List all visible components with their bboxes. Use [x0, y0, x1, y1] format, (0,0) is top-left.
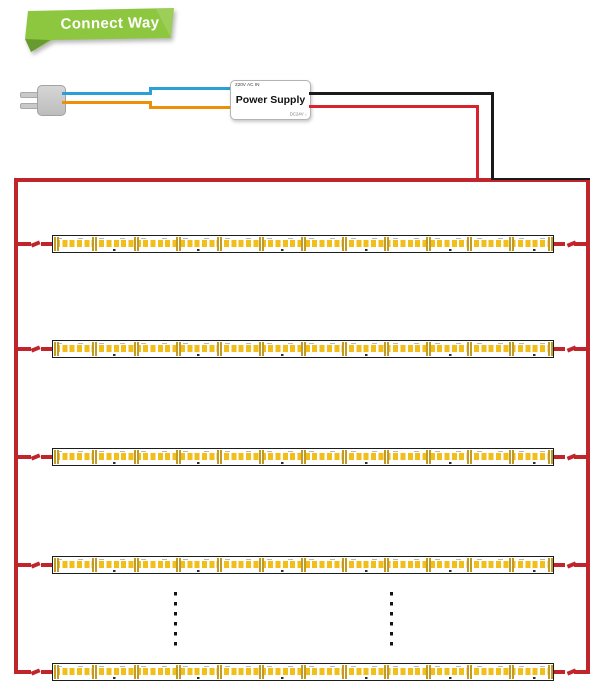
- strip-feed-right-in: [554, 455, 565, 459]
- psu-output-label: DC24V ↓: [290, 113, 307, 117]
- dc-wire-black-vertical: [491, 92, 494, 182]
- strip-feed-left: [18, 670, 31, 674]
- led-strip: [52, 448, 554, 466]
- solder-pad: [426, 558, 431, 572]
- strip-feed-left-break: [30, 453, 40, 460]
- solder-pad: [259, 450, 264, 464]
- solder-pad: [467, 665, 472, 679]
- banner-label: Connect Way: [54, 14, 166, 33]
- solder-pad: [509, 558, 514, 572]
- solder-pad: [342, 665, 347, 679]
- solder-pad: [467, 558, 472, 572]
- strip-feed-left: [18, 455, 31, 459]
- dc-wire-black-along-top-rail: [491, 178, 590, 180]
- solder-pad: [384, 558, 389, 572]
- solder-pad: [509, 450, 514, 464]
- frame-left-rail: [14, 178, 18, 674]
- solder-pad: [92, 342, 97, 356]
- led-strip: [52, 340, 554, 358]
- solder-pad: [509, 342, 514, 356]
- strip-feed-left-in: [41, 455, 52, 459]
- continuation-dots: [174, 592, 177, 647]
- strip-feed-left-in: [41, 670, 52, 674]
- solder-pad: [176, 237, 181, 251]
- strip-feed-left: [18, 242, 31, 246]
- solder-pad: [301, 450, 306, 464]
- solder-pad: [384, 665, 389, 679]
- ac-wire-orange-to-psu: [149, 106, 230, 109]
- solder-pad: [176, 342, 181, 356]
- strip-feed-left-in: [41, 242, 52, 246]
- solder-pad-end: [54, 665, 59, 679]
- strip-feed-left: [18, 563, 31, 567]
- led-strip: [52, 556, 554, 574]
- dc-wire-red-horizontal: [309, 105, 479, 108]
- continuation-dots: [390, 592, 393, 647]
- ac-wire-orange-segment: [62, 101, 152, 104]
- strip-feed-right-in: [554, 670, 565, 674]
- solder-pad: [301, 237, 306, 251]
- psu-title: Power Supply: [231, 94, 310, 106]
- solder-pad: [467, 342, 472, 356]
- strip-feed-right-in: [554, 242, 565, 246]
- solder-pad: [426, 665, 431, 679]
- strip-feed-left: [18, 347, 31, 351]
- strip-feed-left-break: [30, 345, 40, 352]
- strip-feed-right-in: [554, 347, 565, 351]
- solder-pad: [217, 450, 222, 464]
- solder-pad-end: [548, 342, 553, 356]
- solder-pad: [467, 450, 472, 464]
- solder-pad: [92, 558, 97, 572]
- solder-pad: [92, 450, 97, 464]
- strip-feed-right: [574, 347, 586, 351]
- solder-pad-end: [548, 450, 553, 464]
- solder-pad-end: [54, 342, 59, 356]
- solder-pad-end: [548, 558, 553, 572]
- solder-pad-end: [54, 558, 59, 572]
- power-supply-box: 220V AC IN Power Supply DC24V ↓: [230, 80, 311, 120]
- solder-pad: [176, 665, 181, 679]
- strip-feed-left-break: [30, 561, 40, 568]
- solder-pad: [384, 450, 389, 464]
- solder-pad: [134, 342, 139, 356]
- solder-pad-end: [548, 237, 553, 251]
- solder-pad-end: [54, 237, 59, 251]
- solder-pad: [509, 237, 514, 251]
- ac-wire-blue-to-psu: [149, 87, 230, 90]
- solder-pad: [217, 342, 222, 356]
- frame-right-rail: [586, 178, 590, 674]
- solder-pad: [259, 665, 264, 679]
- strip-feed-left-break: [30, 668, 40, 675]
- solder-pad: [301, 558, 306, 572]
- solder-pad: [342, 342, 347, 356]
- solder-pad: [134, 558, 139, 572]
- solder-pad: [217, 558, 222, 572]
- dc-wire-black-horizontal: [309, 92, 494, 95]
- solder-pad: [92, 237, 97, 251]
- solder-pad-end: [54, 450, 59, 464]
- strip-feed-right: [574, 242, 586, 246]
- solder-pad: [92, 665, 97, 679]
- solder-pad: [467, 237, 472, 251]
- solder-pad: [176, 558, 181, 572]
- solder-pad: [134, 450, 139, 464]
- led-strip: [52, 235, 554, 253]
- solder-pad: [134, 665, 139, 679]
- psu-input-label: 220V AC IN: [235, 83, 259, 88]
- solder-pad: [426, 450, 431, 464]
- solder-pad: [217, 665, 222, 679]
- solder-pad: [176, 450, 181, 464]
- solder-pad: [384, 237, 389, 251]
- solder-pad: [259, 558, 264, 572]
- strip-feed-right: [574, 563, 586, 567]
- solder-pad: [384, 342, 389, 356]
- dc-wire-red-vertical: [476, 105, 479, 182]
- diagram-canvas: Connect Way 220V AC IN Power Supply DC24…: [0, 0, 605, 699]
- solder-pad: [426, 237, 431, 251]
- solder-pad: [342, 450, 347, 464]
- strip-feed-right-in: [554, 563, 565, 567]
- strip-feed-left-break: [30, 240, 40, 247]
- solder-pad: [259, 342, 264, 356]
- solder-pad: [509, 665, 514, 679]
- solder-pad-end: [548, 665, 553, 679]
- strip-feed-left-in: [41, 347, 52, 351]
- solder-pad: [217, 237, 222, 251]
- connect-way-banner: Connect Way: [14, 8, 180, 58]
- solder-pad: [342, 558, 347, 572]
- solder-pad: [426, 342, 431, 356]
- strip-feed-left-in: [41, 563, 52, 567]
- solder-pad: [301, 342, 306, 356]
- solder-pad: [259, 237, 264, 251]
- solder-pad: [342, 237, 347, 251]
- led-strip: [52, 663, 554, 681]
- solder-pad: [134, 237, 139, 251]
- ac-wire-blue-segment: [62, 92, 152, 95]
- strip-feed-right: [574, 455, 586, 459]
- solder-pad: [301, 665, 306, 679]
- strip-feed-right: [574, 670, 586, 674]
